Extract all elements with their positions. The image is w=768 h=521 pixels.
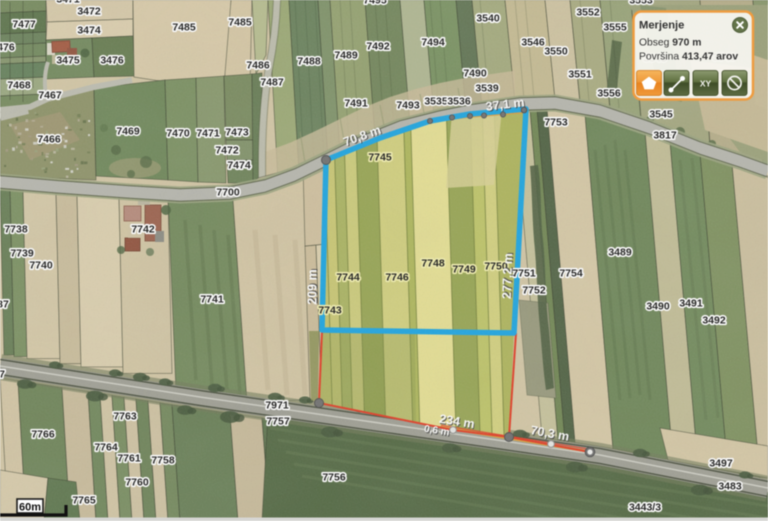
svg-text:60m: 60m (19, 502, 41, 514)
svg-text:Obseg 970 m: Obseg 970 m (639, 38, 701, 49)
svg-text:XY: XY (700, 79, 712, 89)
svg-text:Površina 413,47 arov: Površina 413,47 arov (639, 52, 738, 63)
svg-text:Merjenje: Merjenje (639, 20, 684, 32)
